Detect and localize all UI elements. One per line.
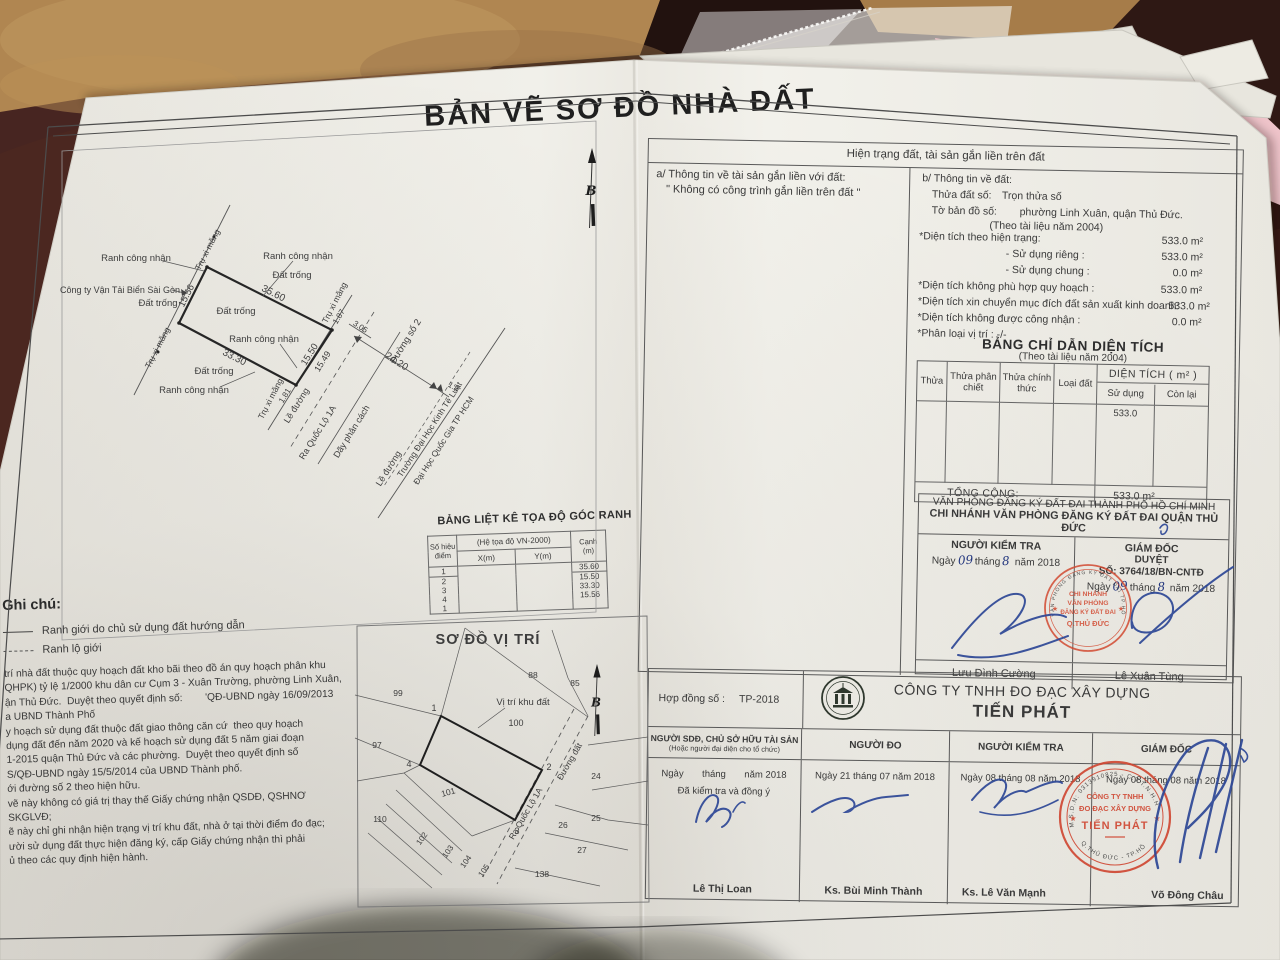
owner-header: NGƯỜI SDĐ, CHỦ SỞ HỮU TÀI SẢN (Hoặc ngườ… [648,727,802,759]
coord-col-edge: Cạnh(m) [570,530,606,562]
checker-date: Ngày 08 tháng 08 năm 2018 [960,772,1080,785]
area-col-type: Loại đất [1054,364,1098,405]
doc-number: SỐ: 3764/18/BN-CNTĐ [1075,565,1228,579]
land-status-panel: Hiện trạng đất, tài sản gắn liền trên đấ… [638,138,1244,683]
area-item-value: 533.0 m² [1162,235,1204,248]
land-survey-document-photo: BẢN VẼ SƠ ĐỒ NHÀ ĐẤT Ghi chú: Ranh giới … [0,0,1280,960]
area-col-use: Sử dụng [1097,383,1155,405]
map-sheet-label: Tờ bản đồ số: [932,204,997,217]
surveyor-date: Ngày 21 tháng 07 năm 2018 [815,770,935,783]
survey-company-box: Hợp đồng số : TP-2018 CÔNG TY TNHH ĐO ĐẠ… [645,668,1242,907]
land-info-title: b/ Thông tin về đất: [922,172,1012,186]
land-info-column: b/ Thông tin về đất: Thửa đất số: Trọn t… [901,168,1243,681]
area-item-label: *Diện tích xin chuyển mục đích đất sản x… [918,295,1180,312]
area-item-value: 0.0 m² [1173,267,1203,280]
contract-label: Hợp đồng số : [659,692,726,705]
owner-date: Ngày tháng năm 2018 [661,768,786,781]
legend-dashed-line-swatch [3,650,33,652]
company-name-line2: TIẾN PHÁT [863,700,1180,724]
area-item-value: 0.0 m² [1172,316,1202,329]
handwritten-month: 8 [1002,554,1011,568]
checker-header: NGƯỜI KIỂM TRA [950,731,1093,763]
legend-solid-line-swatch [3,631,33,633]
checker-date: Ngày09tháng8 năm 2018 [918,552,1074,569]
area-col-group: DIỆN TÍCH ( m² ) [1097,365,1208,385]
director-name: Võ Đông Châu [1105,888,1223,902]
surveyor-cell: Ngày 21 tháng 07 năm 2018 Ks. Bùi Minh T… [800,760,950,904]
legend-dashed-label: Ranh lộ giới [42,642,102,656]
parcel-number-value: Trọn thửa số [1002,190,1062,203]
area-col-official: Thửa chính thức [1000,363,1055,404]
checker-signature-cell: NGƯỜI KIỂM TRA Ngày09tháng8 năm 2018 [916,534,1075,662]
surveyor-name: Ks. Bùi Minh Thành [824,884,922,897]
legend-boundary: Ranh giới do chủ sử dụng đất hướng dẫn [3,616,359,638]
surveyor-header: NGƯỜI ĐO [802,729,950,761]
area-item-label: *Diện tích không được công nhận : [917,311,1080,326]
handwritten-month: 8 [1157,580,1166,594]
coord-col-point: Số hiệuđiểm [428,535,458,567]
area-item-value: 533.0 m² [1161,251,1203,264]
checker-cell: Ngày 08 tháng 08 năm 2018 Ks. Lê Văn Mạn… [948,762,1093,906]
area-table: Thửa Thửa phân chiết Thửa chính thức Loạ… [914,360,1210,508]
legend-solid-label: Ranh giới do chủ sử dụng đất hướng dẫn [42,619,245,637]
assets-info-value: " Không có công trình gắn liền trên đất … [666,183,901,200]
contract-cell: Hợp đồng số : TP-2018 [648,669,804,728]
coord-table: Số hiệuđiểm (Hệ tọa độ VN-2000) Cạnh(m) … [427,529,609,614]
contract-value: TP-2018 [739,693,779,706]
director-header: GIÁM ĐỐC [1093,733,1240,765]
director-date: Ngày 08 tháng 08 năm 2018 [1106,774,1226,787]
company-name-cell: CÔNG TY TNHH ĐO ĐẠC XÂY DỰNG TIẾN PHÁT [803,671,1241,734]
area-col-parcel: Thửa [917,361,948,402]
map-sheet-value: phường Linh Xuân, quận Thủ Đức. [1020,206,1183,221]
parcel-number-label: Thửa đất số: [932,188,992,201]
notes-section: Ghi chú: Ranh giới do chủ sử dụng đất hư… [2,588,365,870]
company-name-line1: CÔNG TY TNHH ĐO ĐẠC XÂY DỰNG [864,681,1181,701]
owner-cell: Ngày tháng năm 2018 Đã kiểm tra và đồng … [646,758,802,902]
corner-coordinates-table: BẢNG LIỆT KÊ TỌA ĐỘ GÓC RANH Số hiệuđiểm… [422,508,645,615]
area-item-value: 533.0 m² [1161,284,1203,297]
area-value-use: 533.0 [1095,405,1155,487]
area-col-split: Thửa phân chiết [947,362,1001,403]
owner-name: Lê Thị Loan [693,883,752,896]
director-cell: Ngày 08 tháng 08 năm 2018 Võ Đông Châu [1091,764,1240,908]
owner-note: Đã kiểm tra và đồng ý [661,785,786,798]
checker-name: Ks. Lê Văn Mạnh [962,886,1076,900]
handwritten-day: 09 [957,553,973,568]
assets-info-title: a/ Thông tin về tài sản gắn liền với đất… [656,168,901,185]
registry-office-box: VĂN PHÒNG ĐĂNG KÝ ĐẤT ĐAI THÀNH PHỐ HỒ C… [915,493,1230,680]
checker-title: NGƯỜI KIỂM TRA [918,538,1074,553]
area-item-value: 533.0 m² [1168,300,1210,313]
director-date: Ngày09tháng8 năm 2018 [1074,578,1227,595]
area-col-remain: Còn lại [1155,384,1208,407]
handwritten-day: 09 [1112,579,1128,594]
area-item-label: - Sử dụng riêng : [1006,248,1085,262]
area-item-label: - Sử dụng chung : [1005,264,1089,278]
director-signature-cell: GIÁM ĐỐC DUYỆT SỐ: 3764/18/BN-CNTĐ Ngày0… [1073,537,1228,665]
area-item-label: *Diện tích không phù hợp quy hoạch : [918,279,1094,294]
legend-road-boundary: Ranh lộ giới [3,635,359,657]
assets-info-column: a/ Thông tin về tài sản gắn liền với đất… [639,163,911,675]
area-item-label: *Diện tích theo hiện trạng: [919,230,1041,244]
